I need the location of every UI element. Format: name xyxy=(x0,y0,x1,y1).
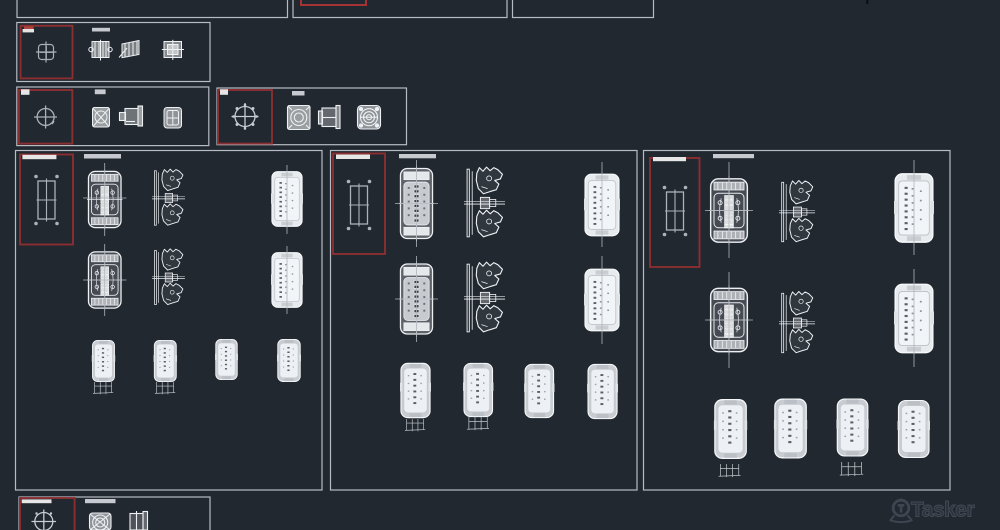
svg-text:Tasker: Tasker xyxy=(911,499,974,522)
